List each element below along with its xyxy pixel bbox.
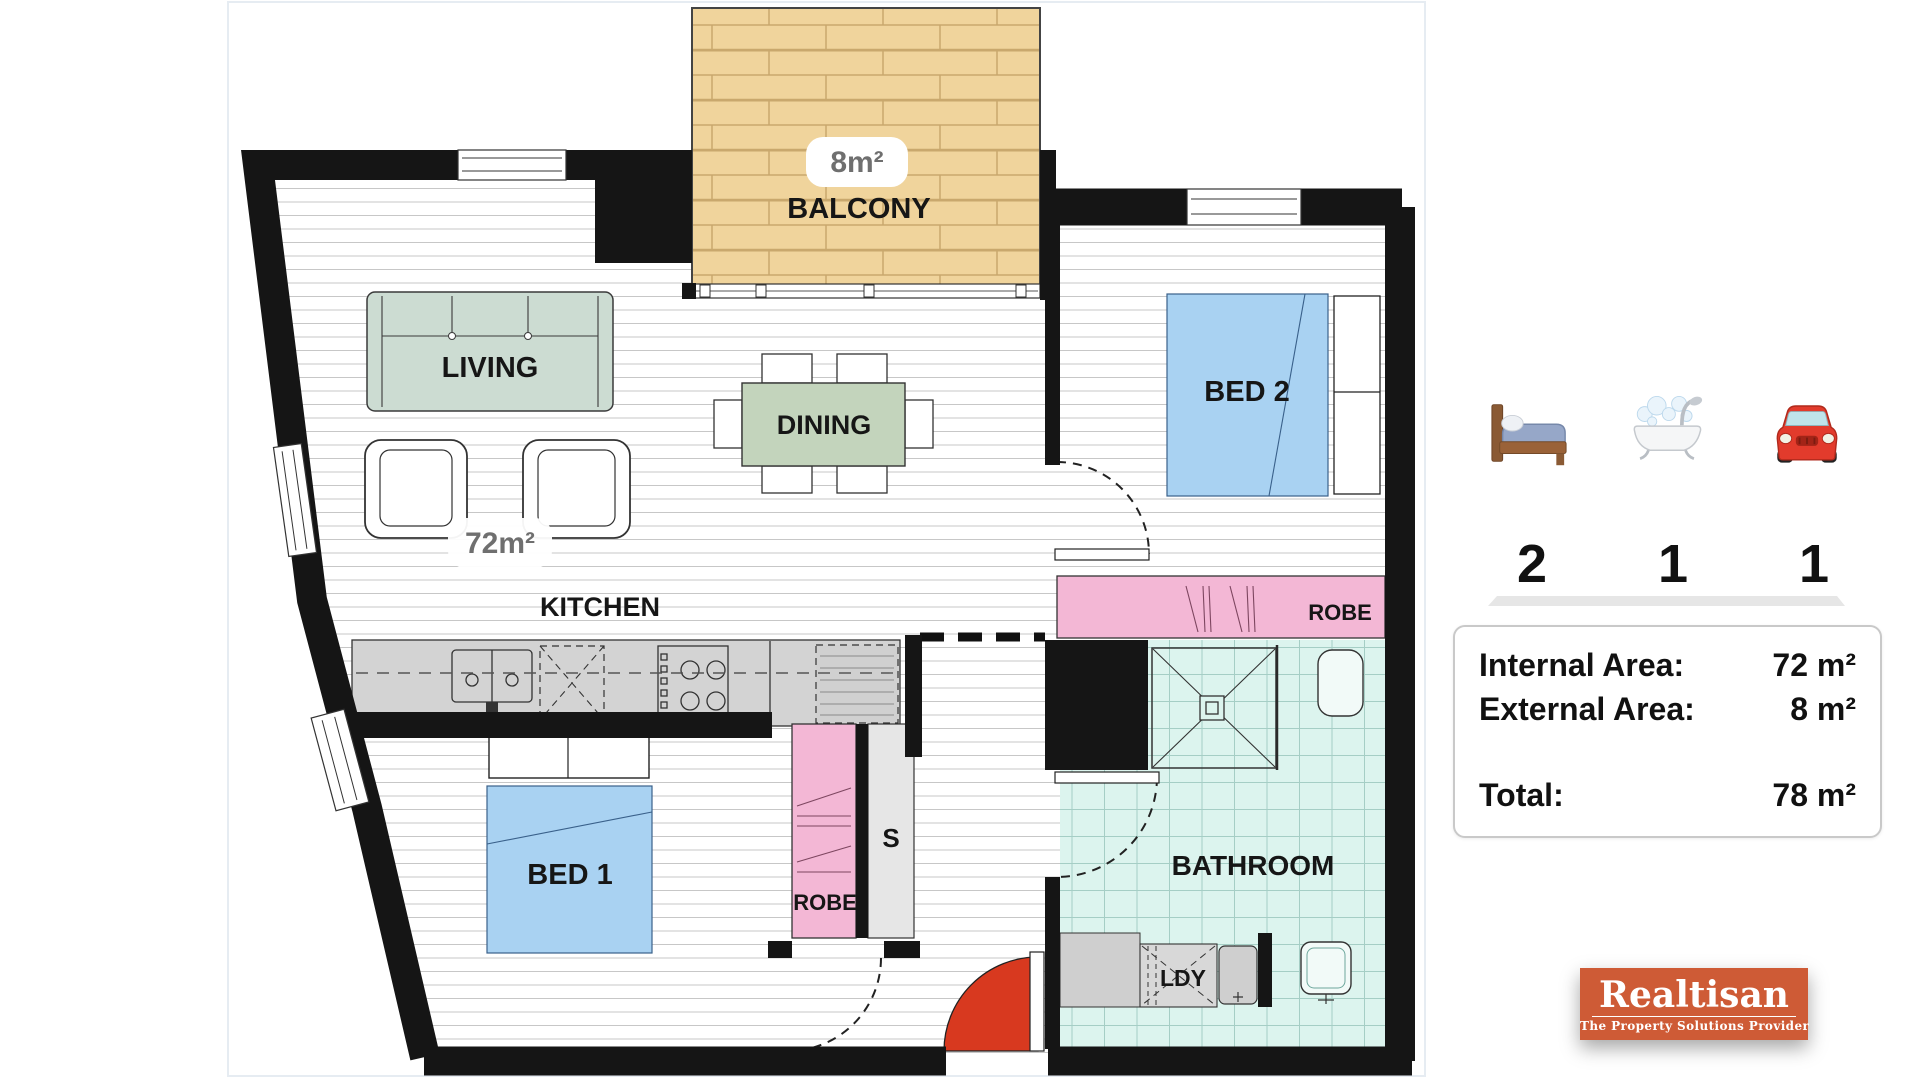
bathroom-count: 1 xyxy=(1638,537,1708,591)
area-summary-box: Internal Area: 72 m² External Area: 8 m²… xyxy=(1453,625,1882,838)
robe2-label: ROBE xyxy=(1308,600,1372,625)
carspace-count: 1 xyxy=(1779,537,1849,591)
logo-tagline: The Property Solutions Provider xyxy=(1580,1020,1808,1033)
external-area-row: External Area: 8 m² xyxy=(1479,687,1856,731)
internal-area-row: Internal Area: 72 m² xyxy=(1479,643,1856,687)
balcony-area-label: 8m² xyxy=(830,146,883,179)
laundry-label: LDY xyxy=(1160,965,1206,991)
bed-1 xyxy=(487,727,652,953)
window xyxy=(1187,189,1301,225)
bedroom-count: 2 xyxy=(1497,537,1567,591)
fridge xyxy=(816,645,898,723)
total-area-value: 78 m² xyxy=(1772,773,1856,817)
bed-icon xyxy=(1488,398,1570,468)
storage-label: S xyxy=(882,823,899,853)
living-label: LIVING xyxy=(442,352,539,384)
total-area-row: Total: 78 m² xyxy=(1479,773,1856,817)
realtisan-logo: Realtisan The Property Solutions Provide… xyxy=(1580,968,1808,1040)
internal-area-plan-label: 72m² xyxy=(465,527,535,560)
robe1-label: ROBE xyxy=(793,890,857,915)
kitchen-label: KITCHEN xyxy=(540,592,660,622)
balcony-label: BALCONY xyxy=(787,193,930,225)
internal-area-label: Internal Area: xyxy=(1479,643,1684,687)
bed2-label: BED 2 xyxy=(1204,376,1289,408)
bed1-label: BED 1 xyxy=(527,859,612,891)
car-icon xyxy=(1768,398,1846,466)
toilet xyxy=(1318,650,1363,716)
floor-plan: 8m² BALCONY LIVING 72m² DINING KITCHEN B… xyxy=(0,0,1920,1080)
bath-icon xyxy=(1628,390,1706,466)
dining-label: DINING xyxy=(777,410,872,440)
logo-divider xyxy=(1592,1016,1796,1017)
logo-name: Realtisan xyxy=(1580,976,1808,1014)
floorplan-page: 8m² BALCONY LIVING 72m² DINING KITCHEN B… xyxy=(0,0,1920,1080)
total-area-label: Total: xyxy=(1479,773,1564,817)
internal-area-value: 72 m² xyxy=(1772,643,1856,687)
armchair xyxy=(365,440,467,538)
external-area-label: External Area: xyxy=(1479,687,1695,731)
external-area-value: 8 m² xyxy=(1790,687,1856,731)
window xyxy=(458,150,566,180)
bathroom-label: BATHROOM xyxy=(1172,850,1335,881)
balcony-rail xyxy=(692,284,1040,298)
summary-divider xyxy=(1486,594,1848,608)
